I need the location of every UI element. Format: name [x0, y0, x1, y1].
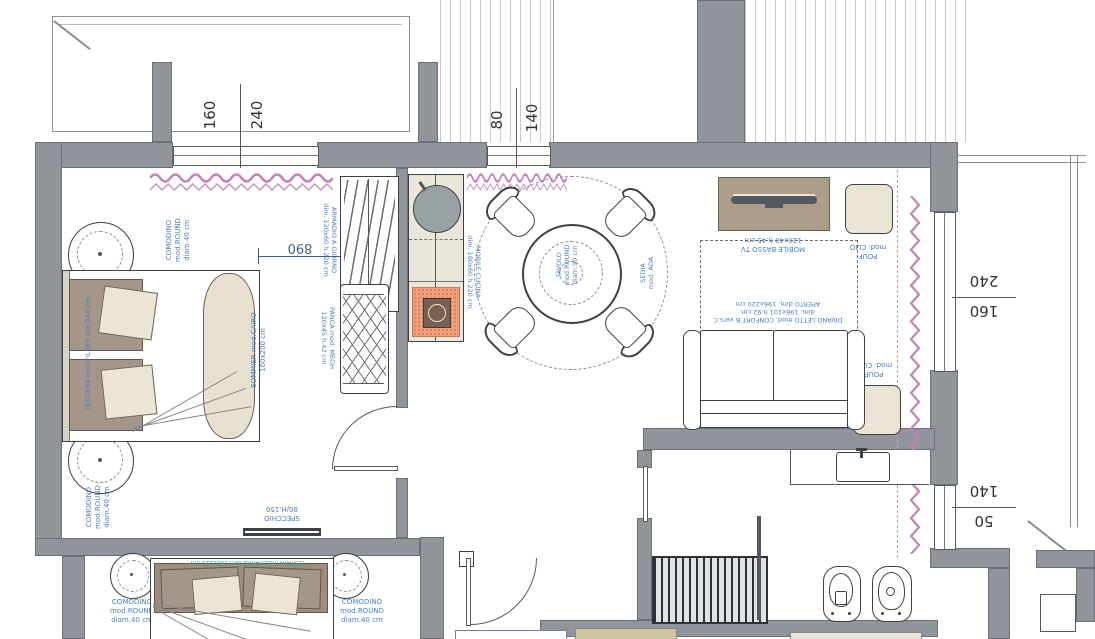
wall-bedroom2-west [62, 556, 85, 639]
headboard-label: TESTIERA mod.FILBER dim.160 cm [84, 289, 96, 419]
sofa-cushion-right [773, 330, 848, 402]
right-balcony-top-edge [958, 155, 1086, 163]
window-right-bottom [934, 485, 956, 550]
pouf-1 [845, 184, 893, 234]
floor-plan: 160 240 80 140 240 160 140 50 COMODINOmo… [0, 0, 1095, 639]
dim-window-mid-140: 140 [523, 88, 541, 148]
bedroom-door-leaf [334, 466, 398, 471]
dim-window-left-240: 240 [248, 85, 266, 145]
neighbor-wall-h [1036, 550, 1095, 568]
bath-partition [757, 516, 761, 620]
wall-bedroom-kitchen-stub [396, 478, 408, 538]
window-left [173, 146, 319, 166]
bed-2 [150, 558, 334, 639]
cutoff-room-hint-2 [575, 628, 677, 639]
roof-gap [553, 0, 699, 142]
wall-top-2 [317, 142, 487, 168]
bench-label: PANCA mod. MEGH120x45 h.42 cm [316, 278, 336, 398]
dim-tick-left [240, 84, 241, 168]
neighbor-wall-v [1076, 568, 1095, 622]
party-wall-upper [697, 0, 745, 152]
sofa-armrest-right [846, 330, 865, 430]
hall-door-arc [470, 558, 537, 625]
wall-left [35, 142, 62, 556]
sofa-label: DIVANO LETTO mod. CONFORT B vers.Cdim. 1… [697, 296, 859, 324]
terrace-side-wall-right [418, 62, 438, 142]
dim-window-mid-80: 80 [488, 90, 506, 150]
mirror [243, 528, 321, 536]
wall-right-lower [930, 548, 1010, 568]
terrace-outline [52, 16, 410, 132]
dim-window-right2-50: 50 [955, 512, 1013, 530]
wall-right-step [988, 568, 1010, 639]
dim-tick-mid [516, 88, 517, 168]
wall-top-3 [549, 142, 957, 168]
table-label: TAVOLOmod.ROUNDdiam.90 cm [555, 209, 585, 321]
toilet [823, 566, 861, 622]
radiator-zigzag-right [905, 196, 925, 554]
terrace-side-wall-left [152, 62, 172, 142]
dim-tick-890-a [258, 248, 259, 264]
bidet [872, 566, 912, 622]
chair-label: SEDIAmod. ADA [639, 223, 659, 323]
cooktop [412, 287, 460, 337]
cutoff-room-hint-1 [455, 630, 567, 639]
window-right-top [934, 212, 956, 372]
dim-window-right-240: 240 [955, 272, 1013, 290]
sink-faucet [418, 181, 426, 191]
dim-window-right2-140: 140 [955, 482, 1013, 500]
bench [340, 284, 389, 394]
dim-window-left-160: 160 [201, 85, 219, 145]
bedroom-door-arc [332, 406, 397, 469]
kitchen-unit [408, 174, 464, 342]
cutoff-room-hint-3 [790, 632, 922, 639]
bed-label: SOMMIER mod.CAIRO160x200 cm [250, 285, 270, 415]
tv-cabinet [718, 177, 830, 231]
wall-right-upper [930, 142, 958, 212]
roof-hatch-right [745, 0, 975, 142]
wall-bath-left [637, 518, 652, 620]
terrace-inner-line [58, 24, 402, 25]
dim-window-right-160: 160 [955, 302, 1013, 320]
sofa-cushion-left [700, 330, 775, 402]
right-balcony-side-edge [1070, 155, 1078, 527]
mirror-label: SPECCHIO80/H.150 [244, 500, 320, 522]
sink [413, 185, 461, 233]
bath-door-leaf [643, 466, 648, 522]
neighbor-fixture [1040, 594, 1076, 632]
wall-hall-west [420, 537, 444, 639]
sofa-back-2 [700, 413, 848, 428]
dim-divider-right-bot [952, 507, 1016, 508]
dim-divider-right-top [952, 297, 1016, 298]
headboard-2-label: TESTATA mod.PARIGI dim.160x120 cm [178, 556, 318, 566]
washbasin [836, 452, 890, 482]
shower-grate [652, 556, 768, 624]
tv [731, 196, 817, 204]
nightstand-2-label: COMODINOmod.ROUNDdiam.40 cm [85, 457, 115, 557]
